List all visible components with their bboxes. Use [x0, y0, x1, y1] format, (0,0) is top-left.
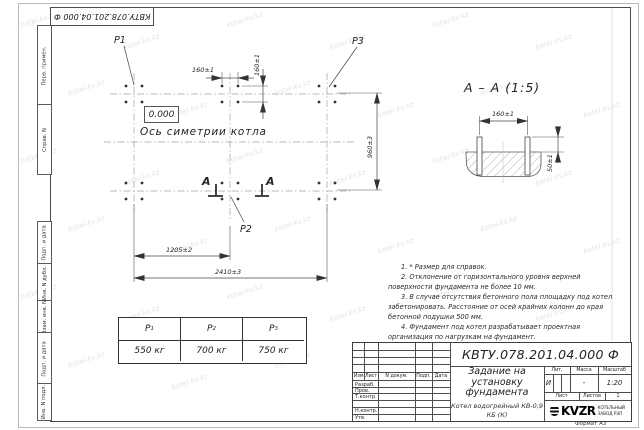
- load-table-header-p2: P2: [181, 318, 243, 341]
- product-name: Котел водогрейный КВ-0,9 КБ (К): [450, 400, 544, 421]
- load-point-p3-label: P3: [352, 36, 364, 47]
- row-nkontr: Н.контр.: [355, 408, 377, 414]
- title-block: Изм.Лист N докум. Подп. Дата Разраб. Про…: [352, 342, 632, 422]
- dim-depth: 960±3: [366, 136, 374, 158]
- kvzr-logo-icon: [550, 405, 559, 416]
- dim-section-bolt-spacing: 160±1: [492, 110, 514, 118]
- section-detail-foundation: [466, 137, 541, 183]
- document-title: Задание на установку фундамента: [450, 366, 544, 400]
- load-table-value-p3: 750 кг: [243, 341, 304, 361]
- lit-value: И: [544, 374, 553, 392]
- section-letter-left: А: [202, 175, 211, 188]
- anchor-bolt-right: [525, 137, 530, 175]
- scale-value: 1:20: [598, 374, 631, 392]
- drawing-sheet: kotel-kv.kzkotel-kv.kzkotel-kv.kzkotel-k…: [0, 0, 644, 430]
- anchor-bolt-left: [477, 137, 482, 175]
- sheet-label: Лист: [544, 392, 579, 400]
- organization-cell: KVZR КОТЕЛЬНЫЙ ЗАВОД РЭП: [544, 400, 631, 421]
- dim-full-width: 2410±3: [215, 268, 241, 276]
- organization-name: КОТЕЛЬНЫЙ ЗАВОД РЭП: [598, 405, 625, 416]
- section-title: А – А (1:5): [464, 80, 540, 95]
- document-designation: КВТУ.078.201.04.000 Ф: [450, 343, 631, 366]
- load-table-header-p1: P1: [119, 318, 181, 341]
- extension-lines: [134, 72, 564, 282]
- load-table-value-p1: 550 кг: [119, 341, 181, 361]
- mass-label: Масса: [570, 366, 598, 374]
- elevation-mark: 0.000: [144, 106, 179, 123]
- load-point-p1-label: P1: [114, 35, 126, 46]
- load-point-p2-label: P2: [240, 224, 252, 235]
- note-4: 4. Фундамент под котел разрабатывает про…: [388, 322, 616, 342]
- sheets-value: 1: [605, 392, 631, 400]
- sheets-label: Листов: [579, 392, 605, 400]
- scale-label: Масштаб: [598, 366, 631, 374]
- col-izm-list: Изм.Лист: [353, 372, 378, 380]
- col-n-dokum: N докум.: [378, 372, 415, 380]
- note-1: 1. * Размер для справок.: [388, 262, 616, 272]
- technical-notes: 1. * Размер для справок. 2. Отклонение о…: [388, 262, 616, 342]
- section-letter-right: А: [266, 175, 275, 188]
- row-tkontr: Т.контр.: [355, 394, 377, 400]
- note-3: 3. В случае отсутствия бетонного пола пл…: [388, 292, 616, 322]
- kvzr-logo-text: KVZR: [561, 404, 596, 418]
- dim-bolt-horizontal: 160±1: [192, 66, 214, 74]
- dim-section-protrusion: 50±1: [546, 154, 554, 172]
- col-data: Дата: [432, 372, 450, 380]
- dim-half-width: 1205±2: [166, 246, 192, 254]
- note-2: 2. Отклонение от горизонтального уровня …: [388, 272, 616, 292]
- row-utv: Утв.: [355, 415, 366, 421]
- lit-label: Лит.: [544, 366, 570, 374]
- dim-bolt-vertical: 160±1: [253, 54, 261, 76]
- anchor-bolt-points: [125, 85, 337, 201]
- load-table-value-p2: 700 кг: [181, 341, 243, 361]
- section-cut-marks: [208, 184, 269, 196]
- row-prov: Пров.: [355, 388, 370, 394]
- col-podp: Подп.: [415, 372, 432, 380]
- boiler-symmetry-axis-label: Ось симетрии котла: [140, 126, 267, 138]
- format-label: Формат А3: [575, 421, 606, 427]
- load-table: P1 P2 P3 550 кг 700 кг 750 кг: [118, 317, 307, 364]
- load-table-header-p3: P3: [243, 318, 304, 341]
- mass-value: -: [570, 374, 598, 392]
